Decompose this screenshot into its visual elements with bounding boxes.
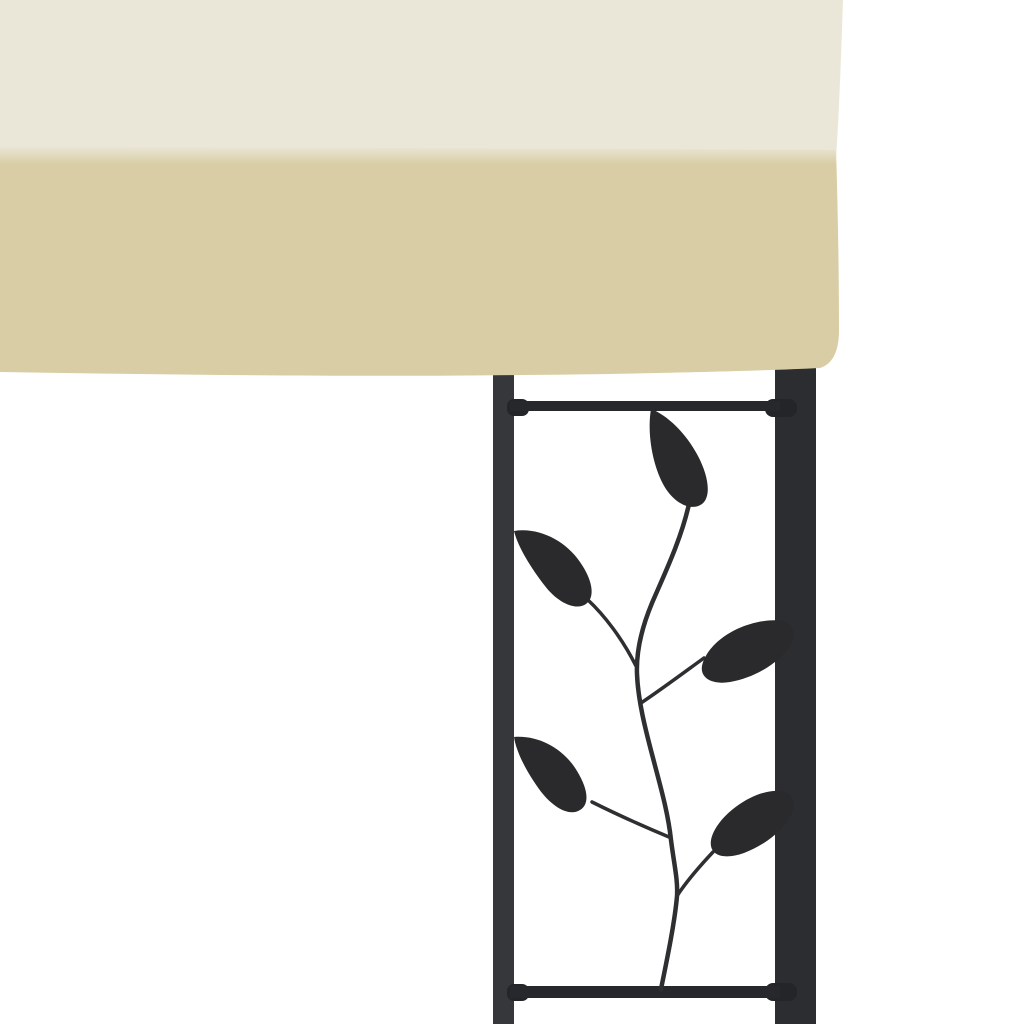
canopy-valance [0,146,839,376]
canopy [0,0,843,376]
canopy-top-panel [0,0,843,158]
top-rail [510,401,780,411]
right-corner-post [775,360,816,1024]
product-photo [0,0,1024,1024]
gazebo-corner-photo [0,0,1024,1024]
bottom-rail [510,986,780,998]
left-frame-bar [493,368,514,1024]
